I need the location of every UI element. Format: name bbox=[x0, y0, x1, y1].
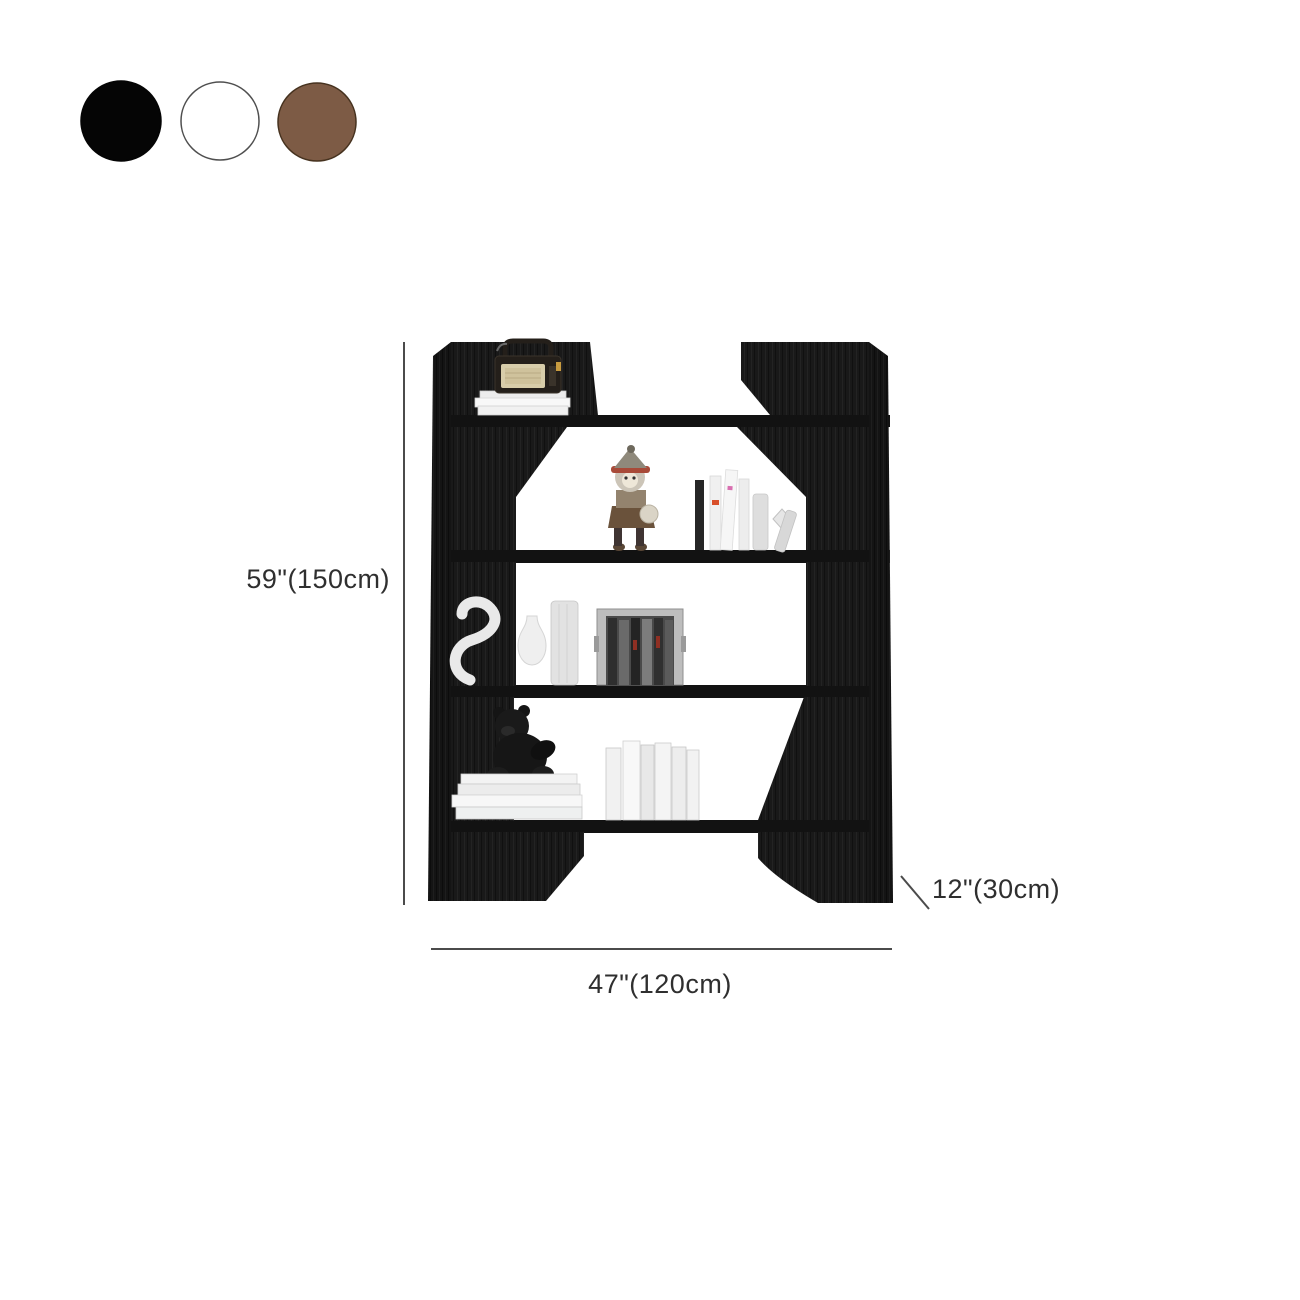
product-dimension-diagram: 59"(150cm) 47"(120cm) 12"(30cm) bbox=[0, 0, 1300, 1300]
color-swatch-brown[interactable] bbox=[278, 83, 356, 161]
color-swatch-white[interactable] bbox=[181, 82, 259, 160]
color-swatch-row bbox=[81, 81, 356, 161]
decor-metal-bookend bbox=[594, 609, 686, 685]
decor-teddy-bear bbox=[487, 705, 559, 783]
shelf-board bbox=[434, 685, 890, 698]
decor-vase bbox=[518, 616, 546, 665]
diagram-graphics: 59"(150cm) 47"(120cm) 12"(30cm) bbox=[0, 0, 1300, 1300]
width-dimension-label: 47"(120cm) bbox=[588, 969, 732, 999]
color-swatch-black[interactable] bbox=[81, 81, 161, 161]
depth-dimension-label: 12"(30cm) bbox=[932, 874, 1060, 904]
decor-book-stack bbox=[452, 774, 582, 819]
shelf-board bbox=[434, 550, 890, 563]
left-outer-board bbox=[428, 342, 451, 901]
decor-cylinder bbox=[551, 601, 578, 685]
shelf-board bbox=[434, 820, 890, 833]
depth-dimension-tick bbox=[901, 876, 929, 909]
height-dimension-label: 59"(150cm) bbox=[246, 564, 390, 594]
decor-paper-rolls bbox=[695, 470, 797, 553]
bookshelf-product-image bbox=[428, 341, 893, 903]
decor-doll bbox=[608, 445, 658, 551]
shelf-board bbox=[434, 415, 890, 427]
decor-standing-books bbox=[606, 741, 699, 820]
